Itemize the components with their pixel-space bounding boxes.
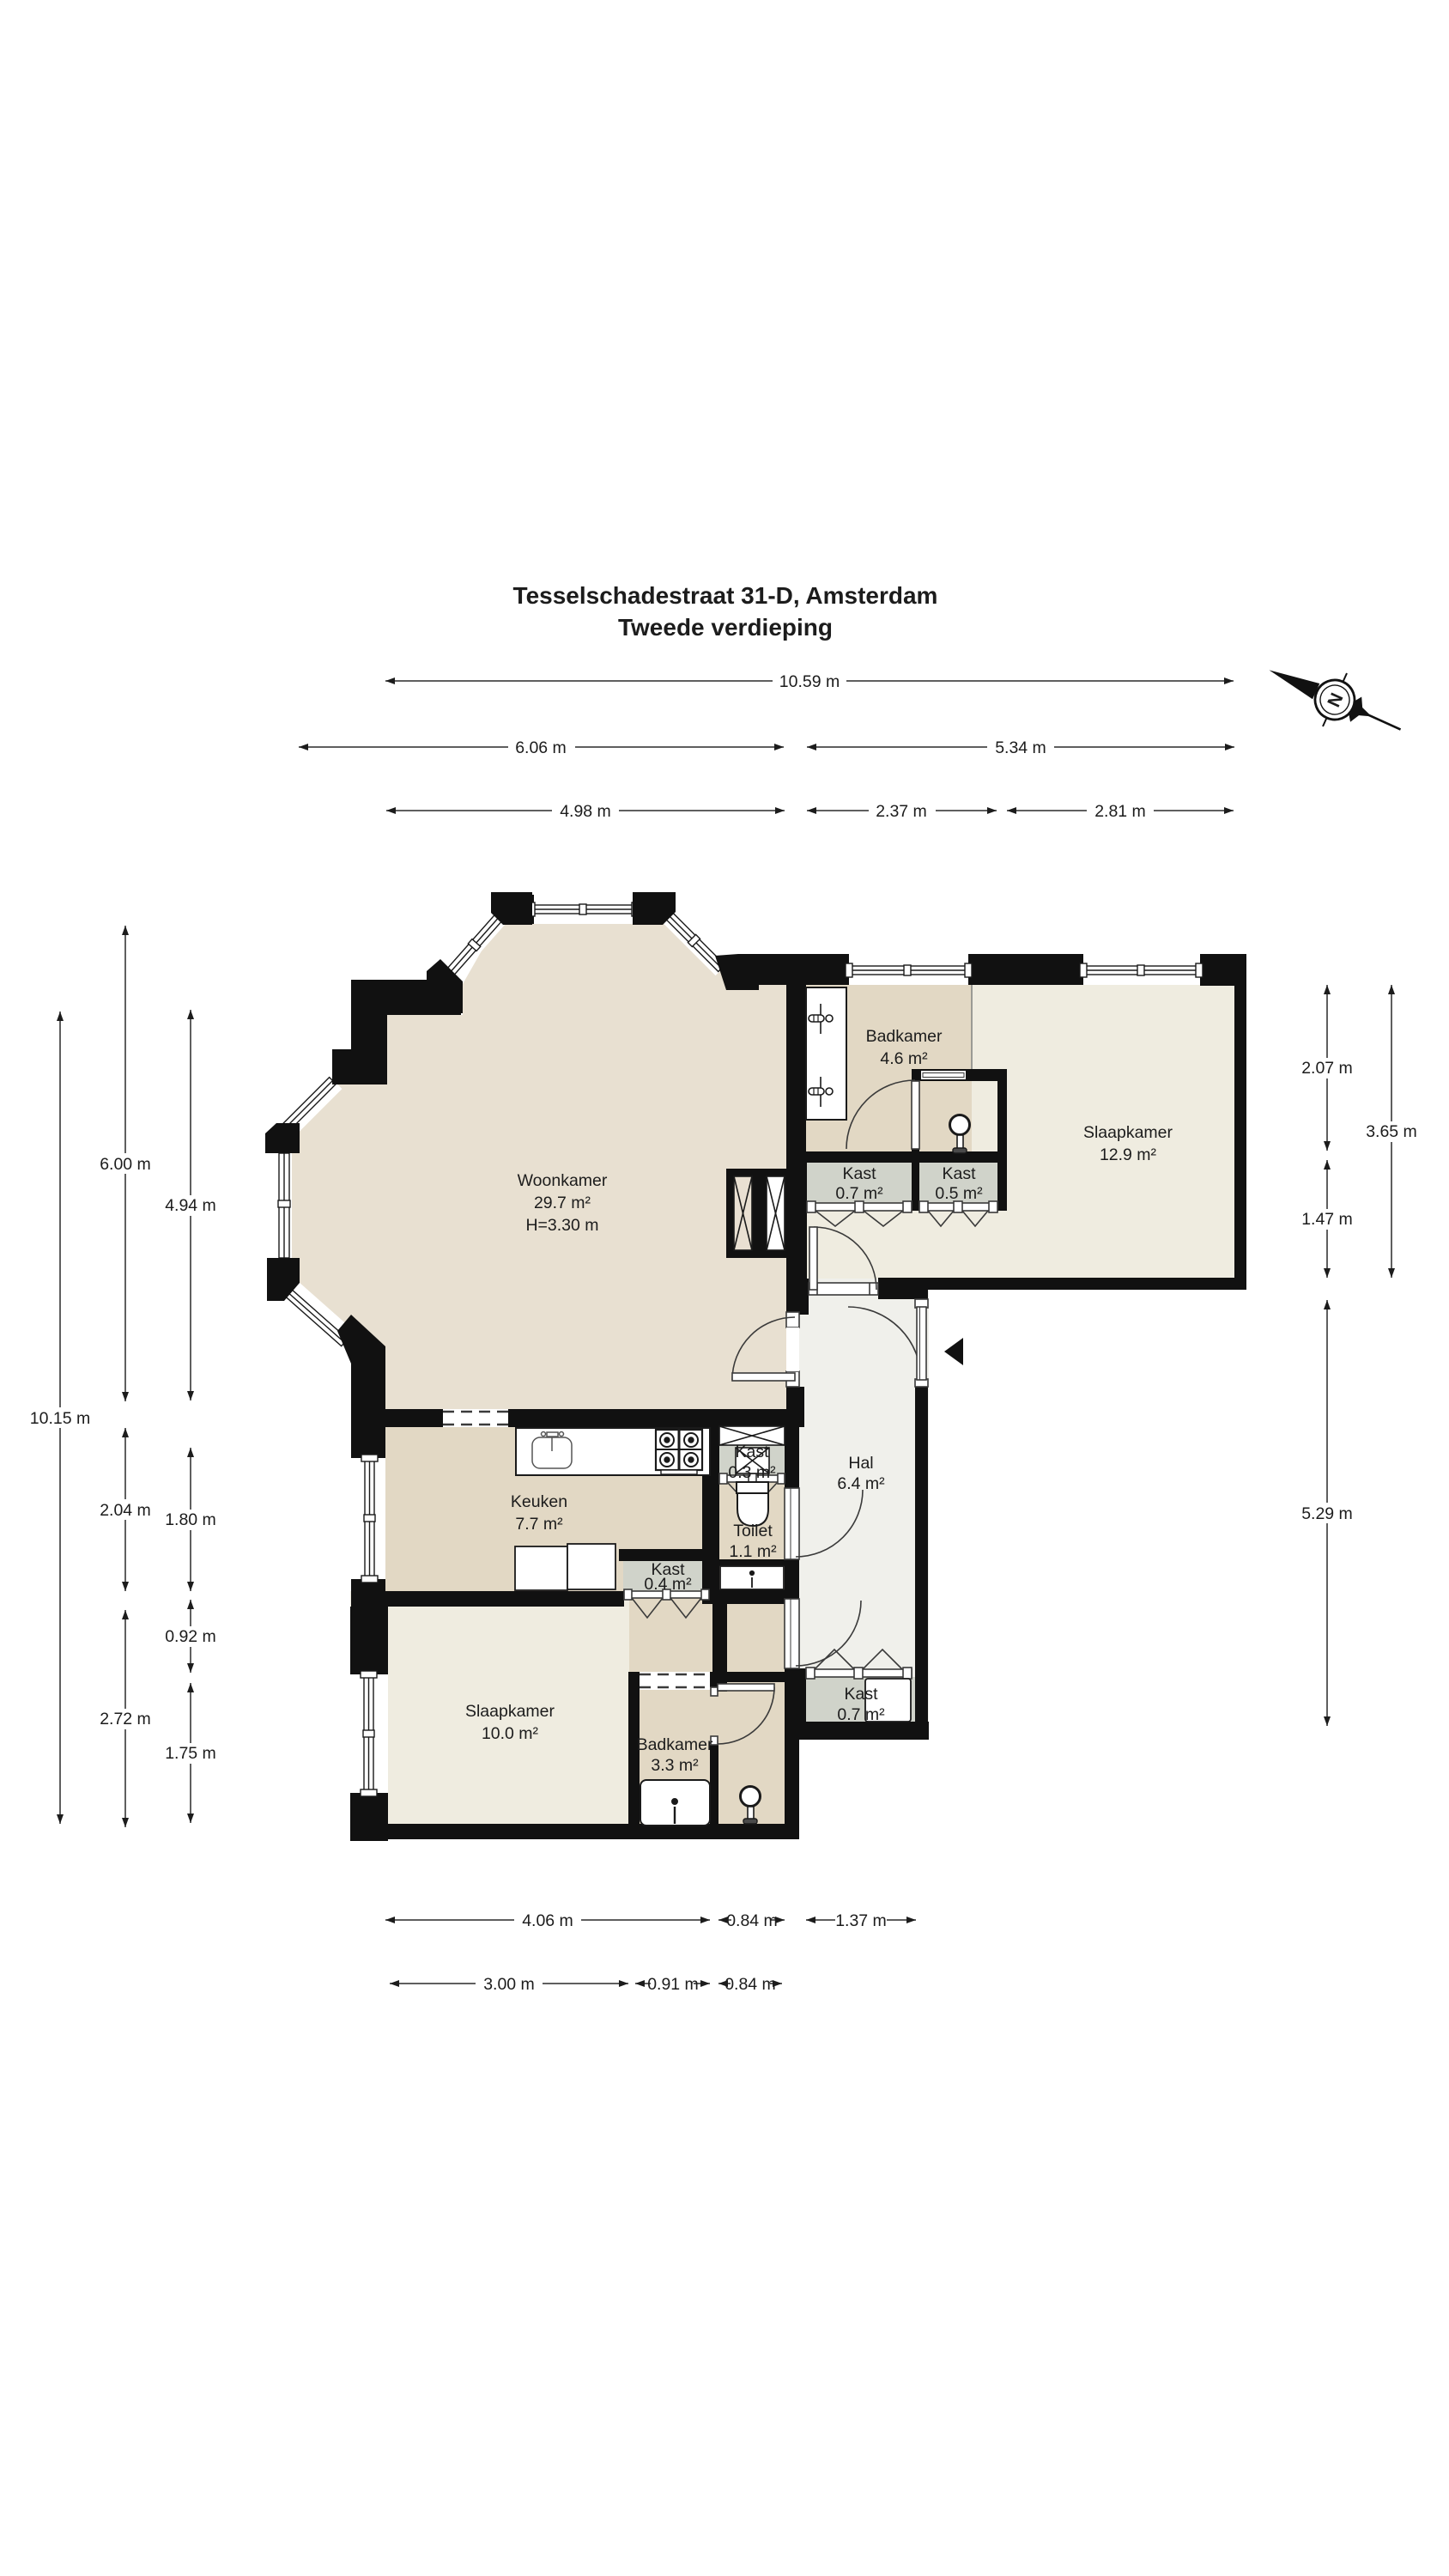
svg-text:Kast: Kast — [942, 1164, 976, 1183]
svg-text:0.92 m: 0.92 m — [165, 1627, 216, 1646]
svg-text:12.9 m²: 12.9 m² — [1100, 1145, 1157, 1164]
svg-text:Slaapkamer: Slaapkamer — [1083, 1123, 1173, 1142]
svg-text:0.84 m: 0.84 m — [726, 1911, 778, 1930]
svg-text:2.07 m: 2.07 m — [1301, 1059, 1353, 1078]
svg-text:4.06 m: 4.06 m — [522, 1911, 573, 1930]
svg-text:4.94 m: 4.94 m — [165, 1196, 216, 1215]
svg-text:3.00 m: 3.00 m — [483, 1975, 535, 1994]
svg-text:1.80 m: 1.80 m — [165, 1510, 216, 1529]
svg-text:5.34 m: 5.34 m — [995, 738, 1046, 757]
svg-text:3.3 m²: 3.3 m² — [651, 1756, 699, 1775]
svg-text:10.0 m²: 10.0 m² — [482, 1724, 539, 1743]
svg-text:Keuken: Keuken — [511, 1492, 567, 1511]
svg-text:10.59 m: 10.59 m — [779, 672, 840, 691]
svg-text:3.65 m: 3.65 m — [1366, 1122, 1417, 1141]
svg-text:Tweede verdieping: Tweede verdieping — [618, 614, 833, 641]
svg-text:Hal: Hal — [848, 1454, 873, 1473]
svg-text:1.37 m: 1.37 m — [835, 1911, 887, 1930]
svg-text:2.37 m: 2.37 m — [876, 802, 927, 821]
svg-text:10.15 m: 10.15 m — [30, 1409, 90, 1428]
svg-text:0.7 m²: 0.7 m² — [835, 1184, 883, 1203]
svg-text:0.3 m²: 0.3 m² — [728, 1463, 776, 1482]
svg-text:0.91 m: 0.91 m — [647, 1975, 699, 1994]
svg-text:H=3.30 m: H=3.30 m — [525, 1216, 598, 1235]
svg-text:2.72 m: 2.72 m — [100, 1710, 151, 1728]
svg-text:Kast: Kast — [735, 1443, 769, 1461]
svg-text:6.06 m: 6.06 m — [515, 738, 567, 757]
svg-text:6.00 m: 6.00 m — [100, 1155, 151, 1174]
svg-text:2.04 m: 2.04 m — [100, 1501, 151, 1520]
svg-text:Slaapkamer: Slaapkamer — [465, 1702, 555, 1721]
svg-text:0.5 m²: 0.5 m² — [935, 1184, 983, 1203]
svg-text:Badkamer: Badkamer — [637, 1735, 713, 1754]
svg-text:Toilet: Toilet — [733, 1522, 773, 1540]
svg-text:1.47 m: 1.47 m — [1301, 1210, 1353, 1229]
svg-text:0.84 m: 0.84 m — [724, 1975, 776, 1994]
svg-text:0.4 m²: 0.4 m² — [644, 1575, 692, 1594]
svg-text:6.4 m²: 6.4 m² — [837, 1474, 885, 1493]
svg-text:1.75 m: 1.75 m — [165, 1744, 216, 1763]
svg-text:0.7 m²: 0.7 m² — [837, 1705, 885, 1724]
svg-text:Tesselschadestraat 31-D, Amste: Tesselschadestraat 31-D, Amsterdam — [513, 582, 938, 609]
svg-text:Woonkamer: Woonkamer — [518, 1171, 608, 1190]
svg-text:29.7 m²: 29.7 m² — [534, 1194, 591, 1212]
svg-text:7.7 m²: 7.7 m² — [515, 1515, 563, 1534]
svg-text:4.98 m: 4.98 m — [560, 802, 611, 821]
svg-text:1.1 m²: 1.1 m² — [729, 1542, 777, 1561]
svg-text:Kast: Kast — [842, 1164, 876, 1183]
svg-text:Badkamer: Badkamer — [866, 1027, 943, 1046]
svg-text:Kast: Kast — [844, 1685, 878, 1704]
svg-text:4.6 m²: 4.6 m² — [880, 1049, 928, 1068]
svg-text:2.81 m: 2.81 m — [1094, 802, 1146, 821]
svg-text:5.29 m: 5.29 m — [1301, 1504, 1353, 1523]
